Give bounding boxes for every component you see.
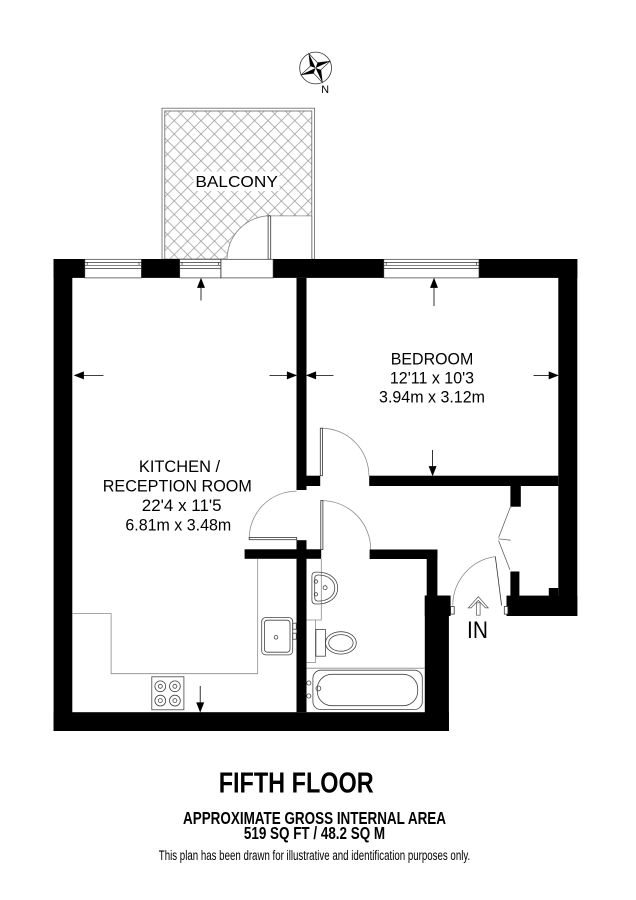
svg-text:FIFTH FLOOR: FIFTH FLOOR <box>219 768 374 800</box>
svg-text:519 SQ FT / 48.2 SQ M: 519 SQ FT / 48.2 SQ M <box>244 823 385 843</box>
svg-text:12'11 x 10'3: 12'11 x 10'3 <box>390 368 474 387</box>
svg-text:KITCHEN /: KITCHEN / <box>139 457 221 476</box>
svg-text:This plan has been drawn for i: This plan has been drawn for illustrativ… <box>159 848 470 863</box>
svg-text:RECEPTION ROOM: RECEPTION ROOM <box>103 476 252 495</box>
svg-text:BALCONY: BALCONY <box>195 174 278 191</box>
svg-text:IN: IN <box>467 617 488 644</box>
svg-text:N: N <box>321 84 329 96</box>
svg-text:22'4 x 11'5: 22'4 x 11'5 <box>142 496 222 515</box>
svg-text:6.81m x 3.48m: 6.81m x 3.48m <box>125 516 231 535</box>
svg-text:BEDROOM: BEDROOM <box>391 349 474 368</box>
svg-text:3.94m x 3.12m: 3.94m x 3.12m <box>379 388 485 407</box>
